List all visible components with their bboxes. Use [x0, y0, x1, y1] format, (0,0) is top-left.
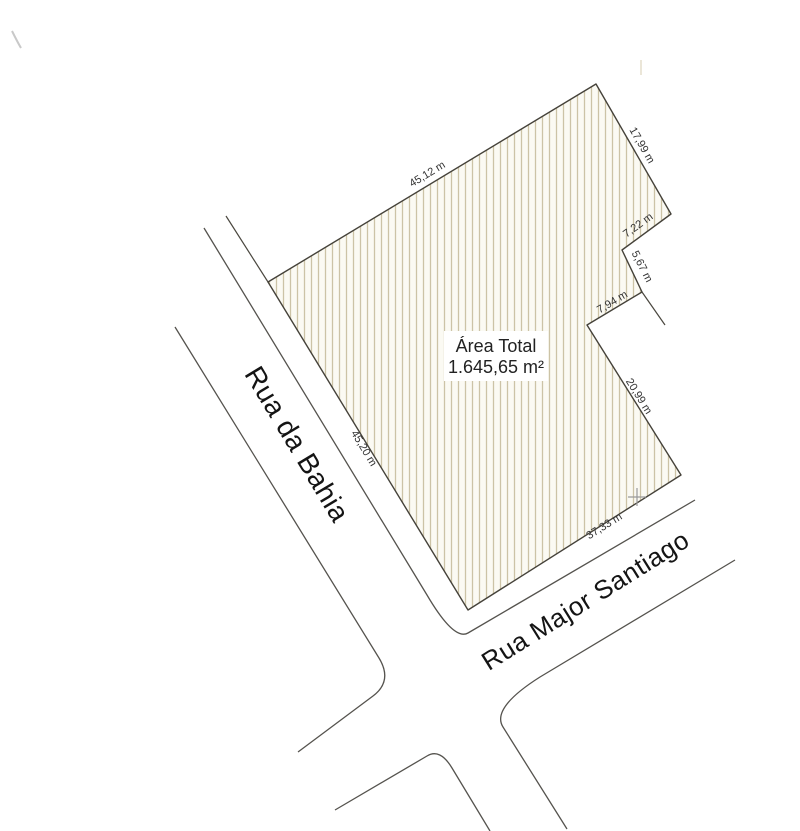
area-label-group: Área Total 1.645,65 m²	[444, 331, 548, 381]
street-edge-santiago-lower	[501, 560, 735, 829]
area-value-text: 1.645,65 m²	[448, 357, 544, 377]
site-plan-page: 45,12 m 17,99 m 7,22 m 5,67 m 7,94 m 20,…	[0, 0, 800, 831]
scan-artifact-mark	[12, 31, 21, 48]
street-edge-south-corner	[335, 754, 490, 831]
site-plan-svg: 45,12 m 17,99 m 7,22 m 5,67 m 7,94 m 20,…	[0, 0, 800, 831]
boundary-extension-line-west	[226, 216, 268, 282]
area-title-text: Área Total	[456, 336, 537, 356]
boundary-extension-line-east	[642, 292, 665, 325]
